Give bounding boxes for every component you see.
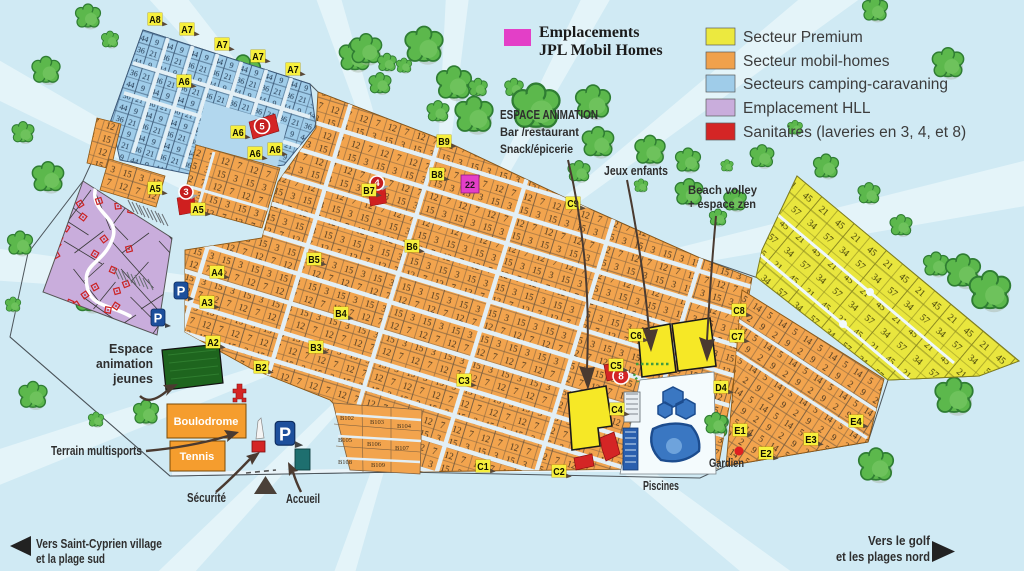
svg-text:et les plages nord: et les plages nord [836, 549, 930, 564]
svg-text:B6: B6 [406, 242, 418, 253]
svg-text:B104: B104 [397, 423, 412, 430]
svg-text:E4: E4 [850, 417, 862, 428]
svg-text:Secteur mobil-homes: Secteur mobil-homes [743, 53, 890, 70]
svg-text:5: 5 [259, 122, 265, 133]
svg-text:B8: B8 [431, 170, 443, 181]
svg-text:Jeux enfants: Jeux enfants [604, 164, 668, 178]
svg-text:JPL Mobil Homes: JPL Mobil Homes [539, 42, 663, 59]
svg-text:C4: C4 [611, 405, 623, 416]
svg-text:E2: E2 [760, 449, 772, 460]
svg-text:B2: B2 [255, 363, 267, 374]
svg-text:B102: B102 [340, 415, 354, 422]
svg-text:C1: C1 [477, 462, 489, 473]
svg-text:B103: B103 [370, 419, 384, 426]
svg-text:B107: B107 [395, 445, 410, 452]
svg-text:C3: C3 [458, 376, 470, 387]
svg-text:A8: A8 [149, 15, 161, 26]
svg-text:B105: B105 [338, 437, 352, 444]
svg-text:C2: C2 [553, 467, 565, 478]
svg-text:A5: A5 [192, 205, 204, 216]
svg-text:Bar /restaurant: Bar /restaurant [500, 125, 579, 139]
svg-text:A7: A7 [287, 65, 299, 76]
svg-text:A2: A2 [207, 338, 219, 349]
svg-text:et la plage sud: et la plage sud [36, 551, 105, 566]
svg-text:B109: B109 [371, 462, 385, 469]
svg-text:Beach volley: Beach volley [688, 185, 758, 197]
svg-text:3: 3 [183, 187, 188, 198]
svg-text:A6: A6 [269, 145, 281, 156]
svg-text:A6: A6 [178, 77, 190, 88]
svg-text:E3: E3 [805, 435, 817, 446]
svg-text:A6: A6 [232, 128, 244, 139]
svg-text:C7: C7 [731, 332, 743, 343]
svg-text:Gardien: Gardien [709, 456, 744, 470]
svg-text:Vers Saint-Cyprien village: Vers Saint-Cyprien village [36, 536, 162, 551]
svg-text:Vers le golf: Vers le golf [868, 533, 931, 548]
svg-text:B5: B5 [308, 255, 320, 266]
svg-text:B106: B106 [367, 441, 382, 448]
svg-text:A7: A7 [216, 40, 228, 51]
svg-text:Sanitaires (laveries en 3, 4,: Sanitaires (laveries en 3, 4, et 8) [743, 124, 966, 141]
svg-text:Emplacement HLL: Emplacement HLL [743, 100, 871, 117]
svg-text:Secteurs camping-caravaning: Secteurs camping-caravaning [743, 76, 948, 93]
svg-text:Boulodrome: Boulodrome [174, 416, 239, 428]
svg-text:Sécurité: Sécurité [187, 491, 226, 505]
svg-text:Accueil: Accueil [286, 492, 320, 506]
svg-text:Snack/épicerie: Snack/épicerie [500, 142, 573, 156]
svg-text:8: 8 [618, 372, 624, 383]
svg-text:A7: A7 [181, 25, 193, 36]
svg-text:Piscines: Piscines [643, 479, 679, 493]
svg-text:A4: A4 [211, 268, 223, 279]
svg-text:Tennis: Tennis [180, 451, 215, 463]
svg-text:E1: E1 [734, 426, 746, 437]
svg-text:B7: B7 [363, 186, 375, 197]
svg-text:Emplacements: Emplacements [539, 24, 639, 41]
svg-text:A6: A6 [249, 149, 261, 160]
svg-text:jeunes: jeunes [112, 372, 153, 386]
svg-text:B108: B108 [338, 459, 352, 466]
svg-text:Terrain multisports: Terrain multisports [51, 444, 142, 458]
svg-text:A5: A5 [149, 184, 161, 195]
svg-text:22: 22 [465, 180, 475, 190]
svg-text:A3: A3 [201, 298, 213, 309]
svg-text:C8: C8 [733, 306, 745, 317]
svg-text:+ espace zen: + espace zen [688, 199, 756, 211]
svg-text:A7: A7 [252, 52, 264, 63]
svg-text:B3: B3 [310, 343, 322, 354]
svg-text:D4: D4 [715, 383, 727, 394]
svg-text:Secteur Premium: Secteur Premium [743, 29, 863, 46]
svg-text:B4: B4 [335, 309, 347, 320]
svg-text:Espace: Espace [109, 342, 153, 356]
svg-text:C5: C5 [610, 361, 622, 372]
svg-text:animation: animation [96, 357, 153, 371]
svg-text:B9: B9 [438, 137, 450, 148]
svg-text:ESPACE ANIMATION: ESPACE ANIMATION [500, 107, 598, 122]
svg-text:C6: C6 [630, 331, 642, 342]
